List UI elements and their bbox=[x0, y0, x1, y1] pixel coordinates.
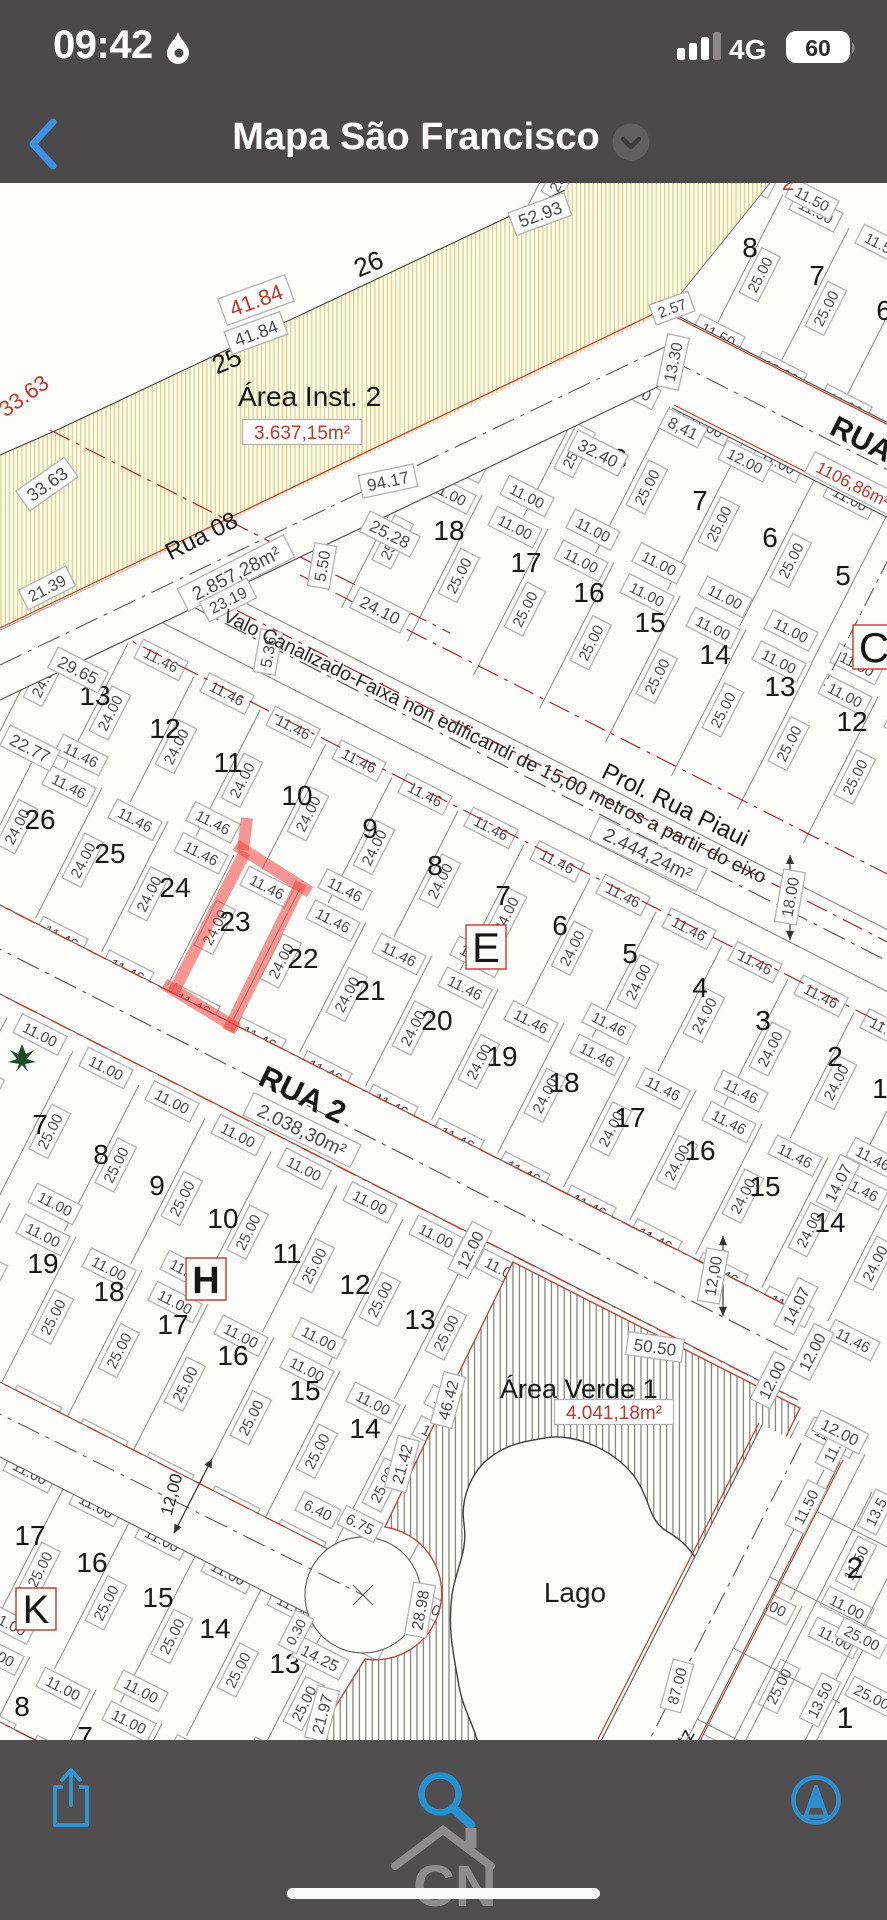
svg-text:25: 25 bbox=[94, 838, 125, 869]
svg-text:12: 12 bbox=[149, 713, 180, 744]
svg-text:24: 24 bbox=[159, 872, 190, 903]
svg-text:15: 15 bbox=[634, 607, 665, 638]
svg-text:19: 19 bbox=[486, 1041, 517, 1072]
svg-text:E: E bbox=[472, 924, 500, 971]
svg-text:Lago: Lago bbox=[544, 1577, 606, 1608]
svg-text:1: 1 bbox=[837, 1702, 854, 1735]
svg-text:K: K bbox=[23, 1588, 50, 1632]
svg-text:12: 12 bbox=[836, 706, 867, 737]
svg-text:2: 2 bbox=[827, 1041, 843, 1072]
svg-text:2: 2 bbox=[782, 183, 794, 195]
svg-text:17: 17 bbox=[14, 1520, 45, 1551]
svg-text:18: 18 bbox=[93, 1276, 124, 1307]
svg-text:8: 8 bbox=[427, 850, 443, 881]
svg-text:16: 16 bbox=[573, 577, 604, 608]
svg-text:3: 3 bbox=[755, 1005, 771, 1036]
svg-text:C: C bbox=[859, 624, 887, 671]
svg-text:19: 19 bbox=[27, 1248, 58, 1279]
svg-text:23: 23 bbox=[219, 906, 250, 937]
svg-text:17: 17 bbox=[614, 1102, 645, 1133]
svg-text:7: 7 bbox=[692, 485, 708, 516]
svg-text:1: 1 bbox=[872, 1073, 887, 1104]
svg-text:6: 6 bbox=[552, 910, 568, 941]
svg-text:26: 26 bbox=[24, 804, 55, 835]
svg-text:2: 2 bbox=[847, 1552, 864, 1585]
svg-text:15: 15 bbox=[142, 1582, 173, 1613]
svg-text:8: 8 bbox=[14, 1691, 30, 1722]
svg-text:9: 9 bbox=[362, 813, 378, 844]
svg-text:4.041,18m²: 4.041,18m² bbox=[566, 1403, 662, 1424]
svg-text:13: 13 bbox=[404, 1304, 435, 1335]
svg-text:18: 18 bbox=[433, 515, 464, 546]
svg-text:18: 18 bbox=[548, 1067, 579, 1098]
svg-text:11: 11 bbox=[213, 747, 242, 778]
svg-text:7: 7 bbox=[809, 260, 825, 291]
svg-text:9: 9 bbox=[149, 1170, 165, 1201]
svg-text:8: 8 bbox=[93, 1139, 109, 1170]
svg-text:17: 17 bbox=[157, 1309, 188, 1340]
svg-text:11: 11 bbox=[272, 1238, 301, 1269]
svg-text:Área Inst. 2: Área Inst. 2 bbox=[238, 381, 381, 412]
svg-text:CN: CN bbox=[413, 1854, 497, 1919]
svg-text:16: 16 bbox=[76, 1547, 107, 1578]
svg-text:4G: 4G bbox=[729, 34, 766, 65]
svg-text:6: 6 bbox=[876, 295, 887, 326]
svg-text:14: 14 bbox=[814, 1207, 845, 1238]
svg-text:7: 7 bbox=[495, 880, 511, 911]
svg-text:3.637,15m²: 3.637,15m² bbox=[254, 423, 350, 444]
svg-text:5: 5 bbox=[622, 938, 638, 969]
svg-text:5: 5 bbox=[835, 560, 851, 591]
svg-text:7: 7 bbox=[32, 1109, 48, 1140]
svg-text:17: 17 bbox=[510, 547, 541, 578]
svg-text:4: 4 bbox=[692, 972, 708, 1003]
svg-text:10: 10 bbox=[207, 1203, 238, 1234]
svg-text:21: 21 bbox=[354, 975, 385, 1006]
svg-text:14: 14 bbox=[349, 1413, 380, 1444]
svg-text:14: 14 bbox=[199, 1613, 230, 1644]
svg-text:6: 6 bbox=[762, 522, 778, 553]
svg-text:H: H bbox=[192, 1260, 219, 1302]
svg-text:22: 22 bbox=[287, 943, 318, 974]
svg-text:60: 60 bbox=[805, 35, 831, 61]
svg-text:15: 15 bbox=[289, 1375, 320, 1406]
svg-text:8: 8 bbox=[742, 232, 758, 263]
svg-text:7: 7 bbox=[77, 1721, 93, 1740]
svg-text:10: 10 bbox=[281, 780, 312, 811]
svg-text:13: 13 bbox=[764, 671, 795, 702]
svg-text:12: 12 bbox=[339, 1269, 370, 1300]
svg-text:16: 16 bbox=[684, 1135, 715, 1166]
svg-text:16: 16 bbox=[217, 1340, 248, 1371]
svg-text:14: 14 bbox=[699, 639, 730, 670]
svg-text:15: 15 bbox=[749, 1171, 780, 1202]
svg-text:20: 20 bbox=[421, 1005, 452, 1036]
